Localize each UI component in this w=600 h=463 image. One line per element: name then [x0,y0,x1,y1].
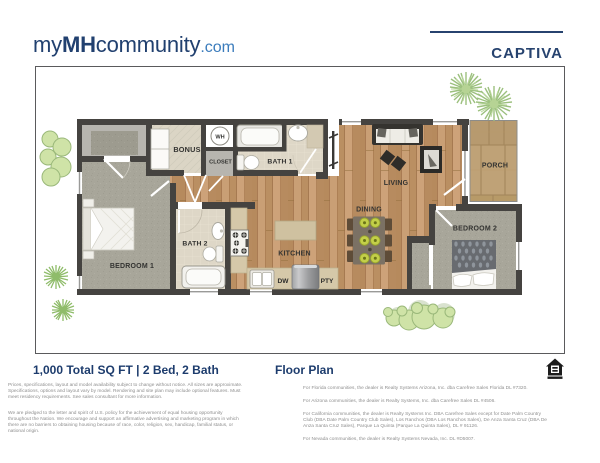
svg-text:DINING: DINING [356,207,382,214]
svg-text:WH: WH [215,135,224,141]
svg-text:BONUS: BONUS [173,145,200,154]
svg-text:KITCHEN: KITCHEN [278,251,311,258]
svg-text:PTY: PTY [321,278,334,285]
svg-text:BATH 2: BATH 2 [182,241,207,248]
svg-text:BEDROOM 2: BEDROOM 2 [453,226,497,233]
svg-text:PORCH: PORCH [482,163,508,170]
svg-text:DW: DW [278,278,290,285]
svg-text:BEDROOM 1: BEDROOM 1 [110,263,154,270]
svg-text:CLOSET: CLOSET [209,160,232,166]
svg-text:BATH 1: BATH 1 [267,159,292,166]
svg-text:LIVING: LIVING [384,180,409,187]
